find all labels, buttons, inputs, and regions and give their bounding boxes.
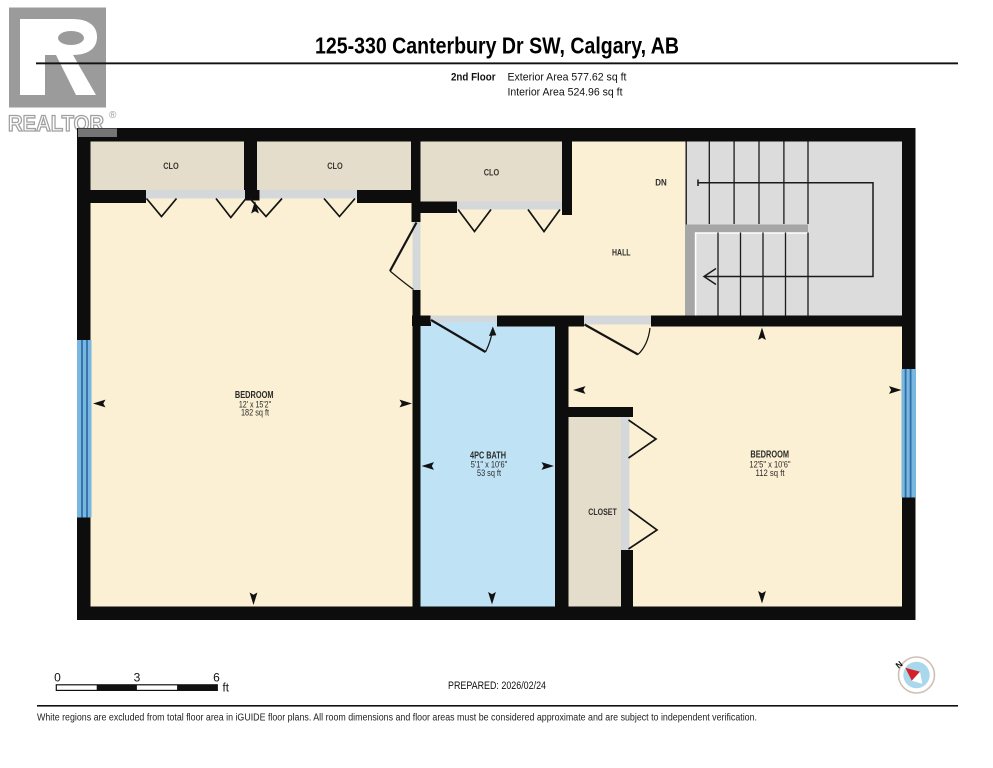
svg-text:Interior Area 524.96 sq ft: Interior Area 524.96 sq ft (508, 87, 623, 99)
svg-text:CLO: CLO (484, 167, 500, 177)
svg-text:112 sq ft: 112 sq ft (756, 468, 785, 478)
svg-text:2nd Floor: 2nd Floor (451, 72, 496, 84)
svg-text:ft: ft (223, 683, 230, 695)
svg-text:White regions are excluded fro: White regions are excluded from total fl… (37, 713, 757, 724)
svg-text:125-330 Canterbury Dr SW, Calg: 125-330 Canterbury Dr SW, Calgary, AB (315, 33, 679, 59)
svg-text:DN: DN (655, 178, 667, 188)
svg-text:CLOSET: CLOSET (588, 507, 617, 517)
svg-text:0: 0 (54, 671, 61, 685)
svg-text:182 sq ft: 182 sq ft (241, 408, 269, 418)
svg-text:®: ® (109, 110, 117, 121)
svg-text:HALL: HALL (612, 248, 631, 258)
svg-text:53 sq ft: 53 sq ft (477, 468, 501, 478)
svg-text:6: 6 (213, 671, 220, 685)
svg-text:CLO: CLO (163, 161, 179, 171)
svg-text:PREPARED: 2026/02/24: PREPARED: 2026/02/24 (448, 680, 546, 692)
svg-text:3: 3 (134, 671, 141, 685)
svg-text:Exterior Area 577.62 sq ft: Exterior Area 577.62 sq ft (508, 72, 627, 84)
svg-text:CLO: CLO (327, 161, 343, 171)
